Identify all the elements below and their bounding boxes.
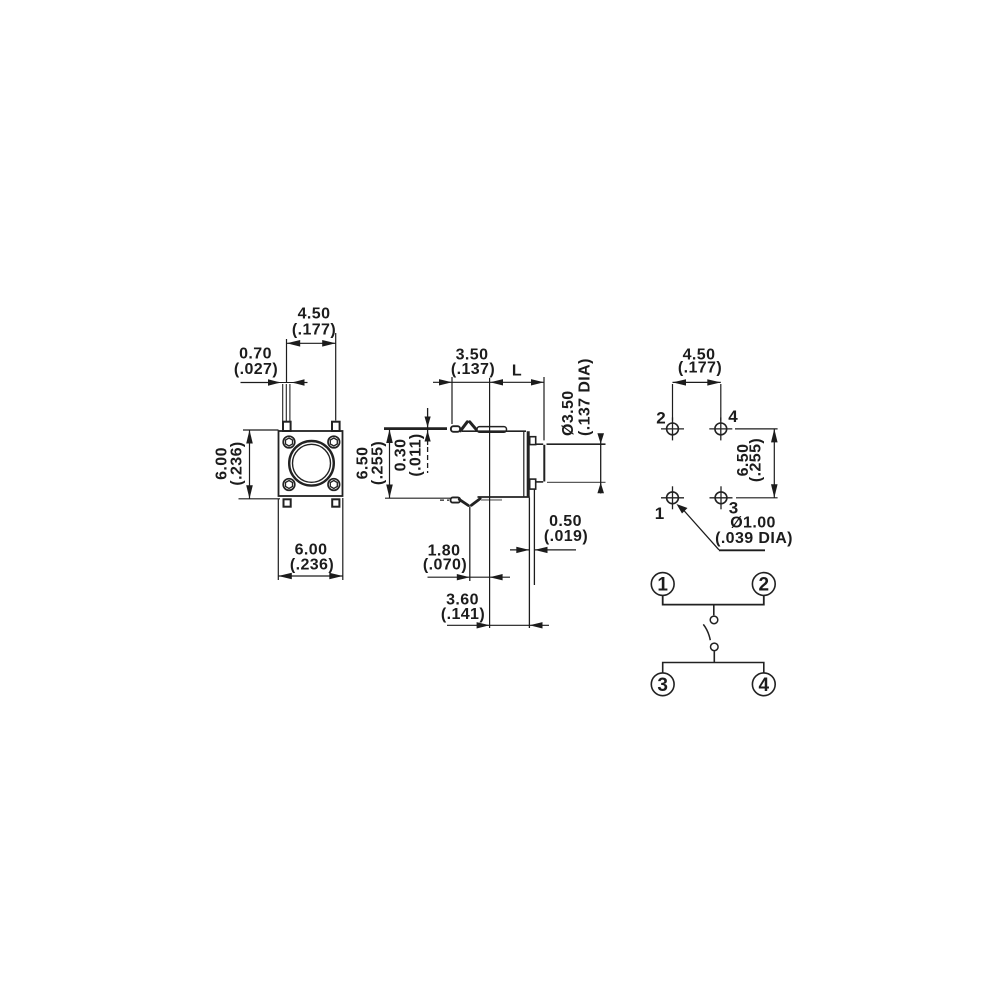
svg-text:3: 3 bbox=[657, 675, 668, 696]
svg-text:4: 4 bbox=[759, 675, 770, 696]
svg-text:Ø3.50: Ø3.50 bbox=[560, 390, 577, 436]
svg-text:(.177): (.177) bbox=[678, 360, 722, 377]
svg-text:L: L bbox=[512, 363, 522, 380]
svg-text:(.236): (.236) bbox=[229, 441, 246, 485]
svg-text:(.177): (.177) bbox=[292, 322, 336, 339]
svg-text:(.255): (.255) bbox=[748, 438, 765, 482]
svg-text:2: 2 bbox=[759, 575, 770, 596]
svg-text:(.137): (.137) bbox=[451, 361, 495, 378]
svg-text:2: 2 bbox=[656, 409, 665, 428]
svg-text:(.011): (.011) bbox=[408, 433, 425, 476]
svg-text:4: 4 bbox=[728, 407, 738, 426]
svg-text:(.255): (.255) bbox=[370, 441, 387, 485]
svg-text:(.070): (.070) bbox=[423, 557, 467, 574]
svg-text:(.027): (.027) bbox=[234, 361, 278, 378]
svg-text:4.50: 4.50 bbox=[298, 306, 331, 323]
svg-text:1: 1 bbox=[655, 504, 664, 523]
svg-text:(.137 DIA): (.137 DIA) bbox=[577, 358, 594, 436]
svg-text:(.019): (.019) bbox=[544, 528, 588, 545]
svg-text:1: 1 bbox=[657, 575, 668, 596]
svg-text:0.70: 0.70 bbox=[239, 346, 272, 363]
svg-text:(.141): (.141) bbox=[441, 606, 485, 623]
svg-text:(.236): (.236) bbox=[290, 557, 334, 574]
svg-text:(.039 DIA): (.039 DIA) bbox=[715, 530, 793, 547]
